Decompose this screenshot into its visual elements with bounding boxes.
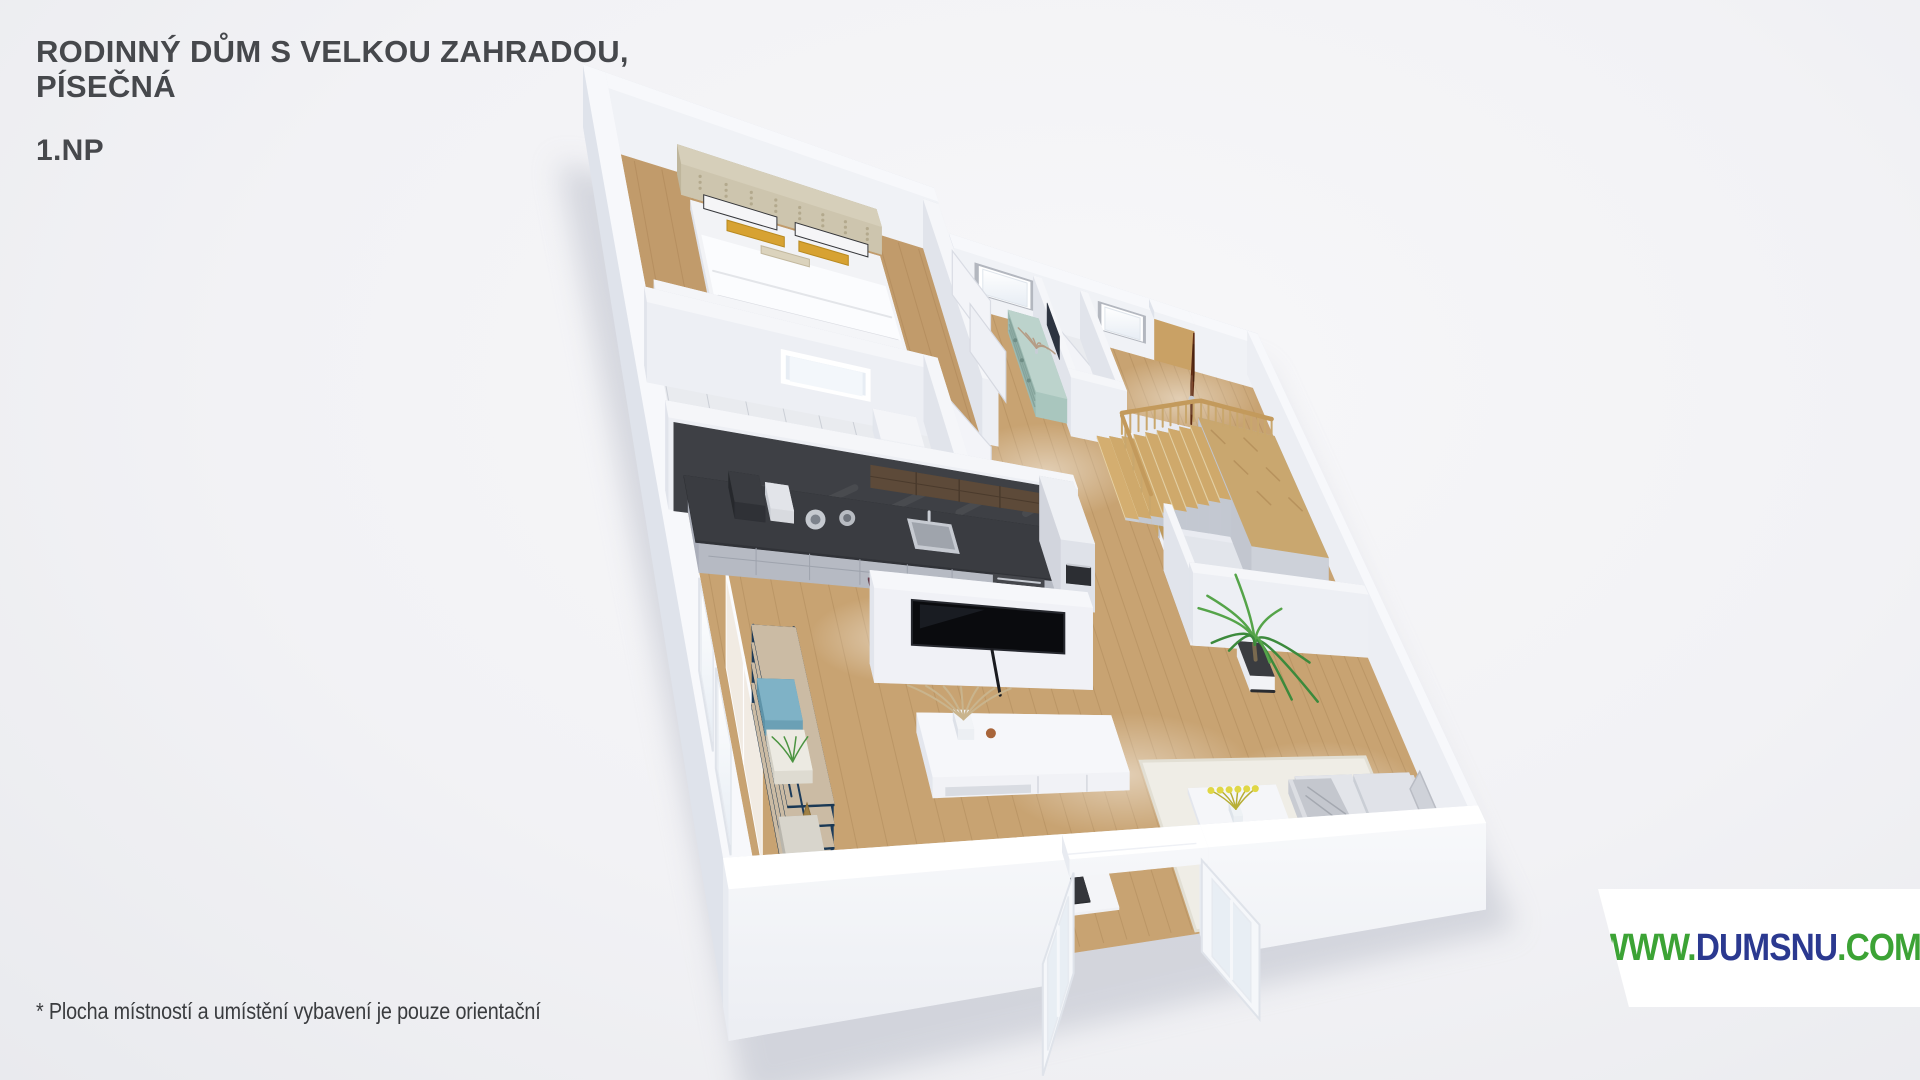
logo-domain: DUMSNU bbox=[1696, 927, 1837, 969]
disclaimer-note: * Plocha místností a umístění vybavení j… bbox=[36, 998, 541, 1025]
title-block: RODINNÝ DŮM S VELKOU ZAHRADOU, PÍSEČNÁ 1… bbox=[36, 34, 629, 168]
website-logo-panel: WWW.DUMSNU.COM bbox=[1598, 889, 1920, 1007]
page-title-line2: PÍSEČNÁ bbox=[36, 69, 629, 104]
floor-label: 1.NP bbox=[36, 134, 629, 168]
logo-tld: .COM bbox=[1837, 927, 1920, 969]
website-logo: WWW.DUMSNU.COM bbox=[1597, 927, 1920, 970]
poster: RODINNÝ DŮM S VELKOU ZAHRADOU, PÍSEČNÁ 1… bbox=[0, 0, 1920, 1080]
tv-stand bbox=[917, 713, 1130, 798]
page-title-line1: RODINNÝ DŮM S VELKOU ZAHRADOU, bbox=[36, 34, 629, 69]
